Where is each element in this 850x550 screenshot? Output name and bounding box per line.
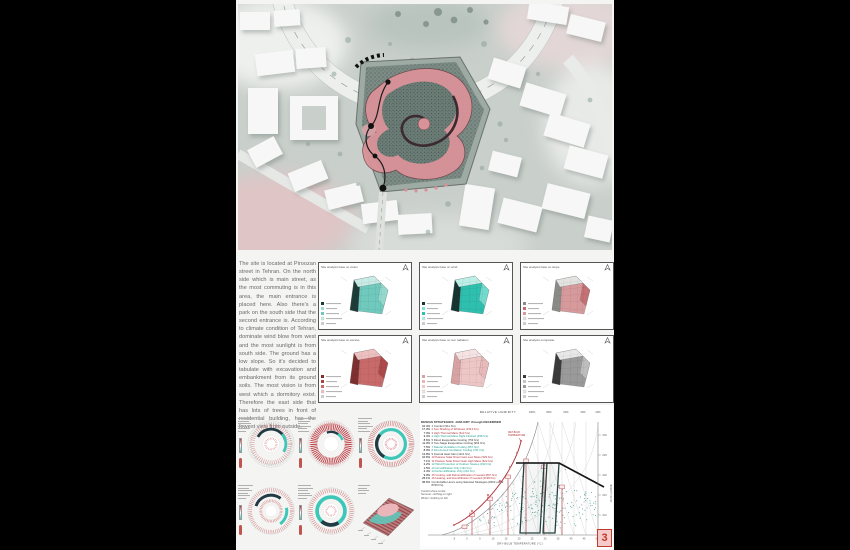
design-strategies-legend: DESIGN STRATEGIES: JANUARY through DECEM… [421, 420, 509, 500]
color-scale [239, 438, 242, 453]
radiation-rose [245, 485, 297, 537]
analysis-panel: Site analysis base on access [318, 335, 412, 403]
svg-text:40%: 40% [580, 410, 586, 414]
svg-text:.015: .015 [602, 494, 607, 497]
comfort-rose [365, 418, 417, 470]
x-axis-label: DRY-BULB TEMPERATURE (°C) [497, 542, 543, 546]
radial-diagram [357, 416, 417, 482]
analysis-panel: Site analysis base on wind [419, 262, 513, 330]
radial-diagram [297, 416, 357, 482]
presentation-board: The site is located at Piroozan street i… [236, 0, 614, 550]
compass-axes [319, 263, 413, 329]
thermometer-glyph [239, 458, 242, 468]
color-scale [299, 438, 302, 453]
svg-text:-5: -5 [453, 538, 456, 541]
psychrometric-chart: DESIGN STRATEGIES: JANUARY through DECEM… [420, 405, 613, 549]
svg-text:20%: 20% [595, 410, 601, 414]
svg-text:15: 15 [505, 538, 508, 541]
y-tick-labels: .030 .025 .020 .015 .010 .005 [602, 434, 607, 533]
svg-text:5: 5 [479, 538, 481, 541]
color-scale [359, 438, 362, 453]
comfort-zone-note: Comfort Zone Limits: Summer: clothing on… [421, 490, 509, 501]
svg-text:.010: .010 [602, 514, 607, 517]
micro-legend [358, 485, 374, 495]
site-plan-render [238, 4, 612, 250]
svg-text:20: 20 [518, 538, 521, 541]
site-plan-graphic [238, 4, 612, 250]
screenshot-canvas: The site is located at Piroozan street i… [0, 0, 850, 550]
rh-axis-label: RELATIVE HUMIDITY [480, 410, 516, 414]
svg-text:40: 40 [570, 538, 573, 541]
page-number: 3 [597, 529, 612, 547]
svg-text:10: 10 [492, 538, 495, 541]
rh-ticks: 100% 80% 60% 40% 20% [529, 410, 602, 414]
svg-text:TEMPERATURE: TEMPERATURE [508, 434, 526, 437]
comfort-zones [520, 463, 559, 533]
svg-text:25: 25 [531, 538, 534, 541]
thermometer-glyph [299, 525, 302, 535]
wet-bulb-annotation: WET-BULB TEMPERATURE [508, 432, 526, 437]
compass-axes [521, 263, 615, 329]
analysis-panel: Site analysis base on sun radiation [419, 335, 513, 403]
svg-text:45: 45 [583, 538, 586, 541]
radial-diagram [297, 483, 357, 549]
analysis-panel: Site analysis base on vision [318, 262, 412, 330]
thermometer-glyph [299, 458, 302, 468]
svg-text:30: 30 [544, 538, 547, 541]
compass-axes [319, 336, 413, 402]
radial-diagram [237, 483, 297, 549]
project-site [356, 55, 490, 193]
terrain-diagram [357, 483, 417, 549]
analysis-panel: Site analysis base on slope [520, 262, 614, 330]
x-tick-labels: -5 0 5 10 15 20 25 30 35 40 45 50 [453, 538, 599, 541]
svg-text:.025: .025 [602, 454, 607, 457]
svg-text:.030: .030 [602, 434, 607, 437]
color-scale [299, 505, 302, 520]
site-analysis-grid: Site analysis base on vision [318, 262, 614, 403]
courtyard-cutout [302, 106, 326, 130]
svg-text:0: 0 [466, 538, 468, 541]
analysis-panel: Site analysis composite [520, 335, 614, 403]
svg-text:60%: 60% [563, 410, 569, 414]
radial-diagram [237, 416, 297, 482]
y-axis-label: HUMIDITY RATIO [609, 484, 612, 503]
thermometer-glyph [239, 525, 242, 535]
strategy-row: 96.6% Comfortable Hours using Selected S… [421, 481, 509, 488]
compass-axes [420, 336, 514, 402]
svg-text:100%: 100% [529, 410, 536, 414]
radial-climate-diagrams [237, 416, 419, 550]
color-scale [239, 505, 242, 520]
site-description: The site is located at Piroozan street i… [239, 260, 316, 431]
wind-rose [245, 418, 297, 470]
svg-text:35: 35 [557, 538, 560, 541]
svg-text:.020: .020 [602, 474, 607, 477]
svg-text:80%: 80% [546, 410, 552, 414]
sun-hours-rose [305, 418, 357, 470]
thermometer-glyph [359, 458, 362, 468]
ventilation-rose [305, 485, 357, 537]
compass-axes [420, 263, 514, 329]
compass-axes [521, 336, 615, 402]
svg-text:WET-BULB: WET-BULB [508, 432, 520, 434]
